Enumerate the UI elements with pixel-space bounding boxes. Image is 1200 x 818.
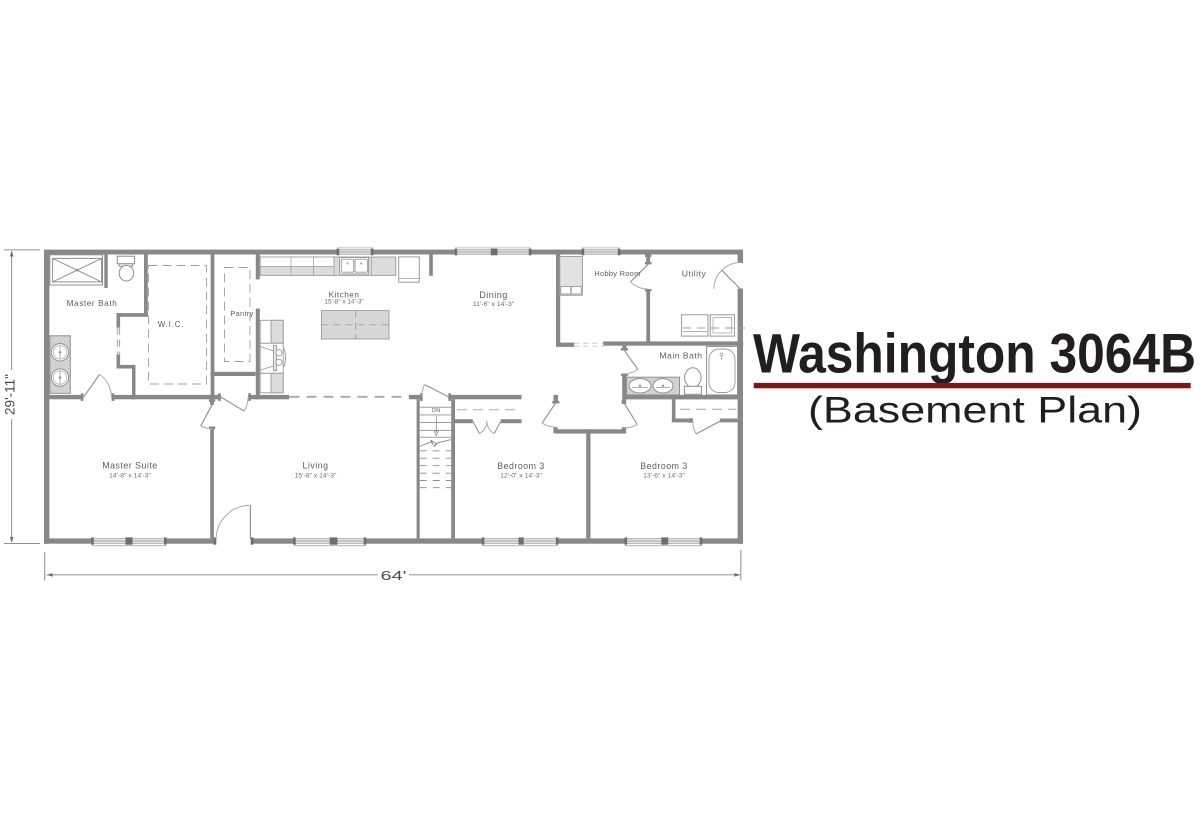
svg-text:Master Bath: Master Bath: [67, 299, 118, 308]
svg-text:15'-8" x 14'-3": 15'-8" x 14'-3": [295, 472, 337, 479]
svg-text:Pantry: Pantry: [230, 309, 253, 318]
svg-text:64': 64': [381, 568, 407, 583]
svg-text:Dining: Dining: [479, 290, 508, 300]
svg-text:Washington 3064B: Washington 3064B: [753, 322, 1196, 385]
svg-text:11'-6" x 14'-3": 11'-6" x 14'-3": [473, 301, 515, 308]
svg-text:13'-6" x 14'-3": 13'-6" x 14'-3": [643, 473, 685, 480]
svg-text:DN: DN: [432, 408, 441, 414]
svg-text:Main Bath: Main Bath: [659, 350, 702, 360]
svg-text:29'-11": 29'-11": [3, 374, 18, 415]
svg-text:14'-8" x 14'-3": 14'-8" x 14'-3": [109, 472, 151, 479]
svg-text:Bedroom 3: Bedroom 3: [640, 461, 688, 471]
svg-text:(Basement Plan): (Basement Plan): [808, 390, 1142, 431]
svg-text:Bedroom 3: Bedroom 3: [497, 461, 545, 471]
svg-text:W.I.C.: W.I.C.: [158, 320, 185, 329]
svg-text:15'-8" x 14'-3": 15'-8" x 14'-3": [324, 299, 363, 306]
svg-text:Living: Living: [303, 461, 329, 471]
svg-text:Hobby Room: Hobby Room: [594, 269, 640, 278]
svg-text:Utility: Utility: [682, 268, 707, 278]
svg-text:Master Suite: Master Suite: [102, 461, 157, 471]
svg-text:12'-0" x 14'-3": 12'-0" x 14'-3": [500, 473, 542, 480]
